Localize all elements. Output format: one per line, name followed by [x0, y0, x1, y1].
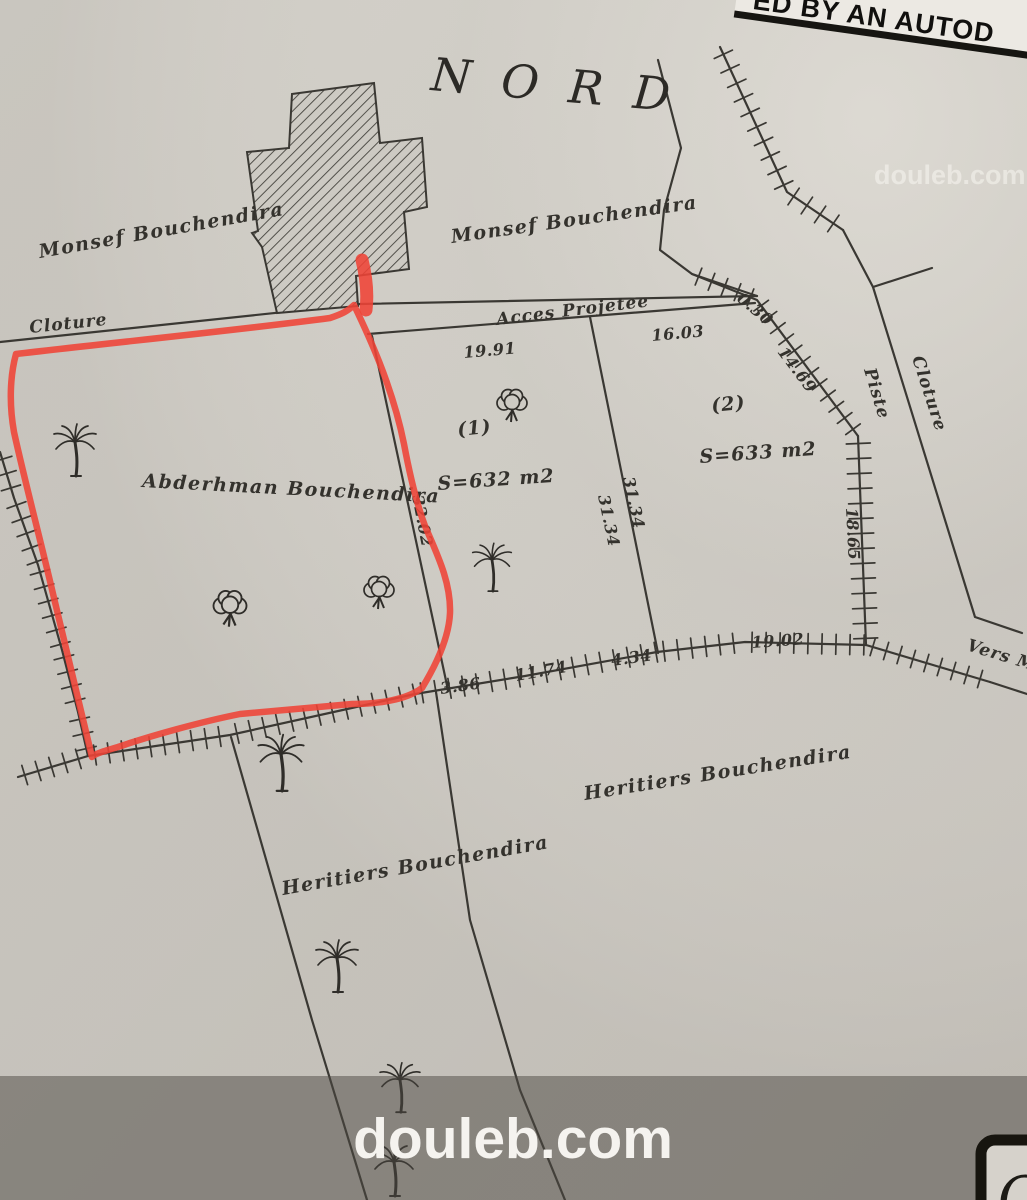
watermark-top: douleb.com	[874, 160, 1026, 190]
parcel-2-number: (2)	[710, 392, 746, 417]
cadastral-plan-canvas: NORD Monsef Bouchendira Monsef Bouchendi…	[0, 0, 1027, 1200]
watermark-bottom: douleb.com	[353, 1107, 673, 1171]
measurement-19-02: 19.02	[751, 629, 805, 652]
parcel-1-number: (1)	[456, 416, 492, 441]
stamp-frame: C	[981, 1140, 1027, 1200]
paper-shading	[0, 0, 1027, 1200]
measurement-18-65: 18.65	[842, 507, 864, 561]
stamp-letter: C	[998, 1165, 1027, 1200]
survey-plan-photo: NORD Monsef Bouchendira Monsef Bouchendi…	[0, 0, 1027, 1200]
